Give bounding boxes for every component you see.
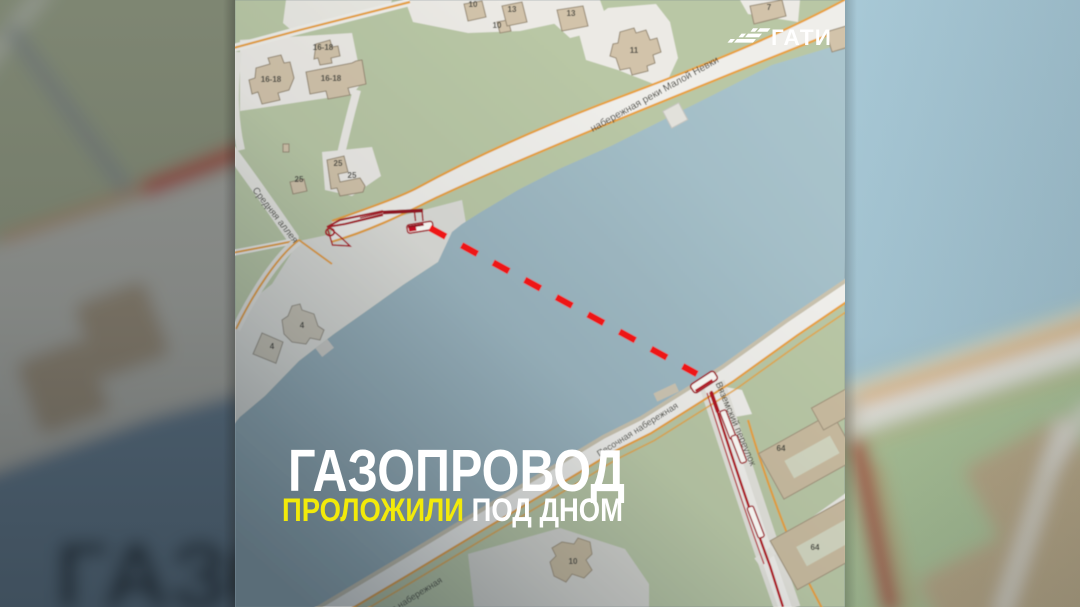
- svg-text:ПРОЛОЖИЛИ ПОД ДНОМ: ПРОЛОЖИЛИ ПОД ДНОМ: [282, 492, 623, 528]
- svg-text:ГАТИ: ГАТИ: [771, 25, 832, 50]
